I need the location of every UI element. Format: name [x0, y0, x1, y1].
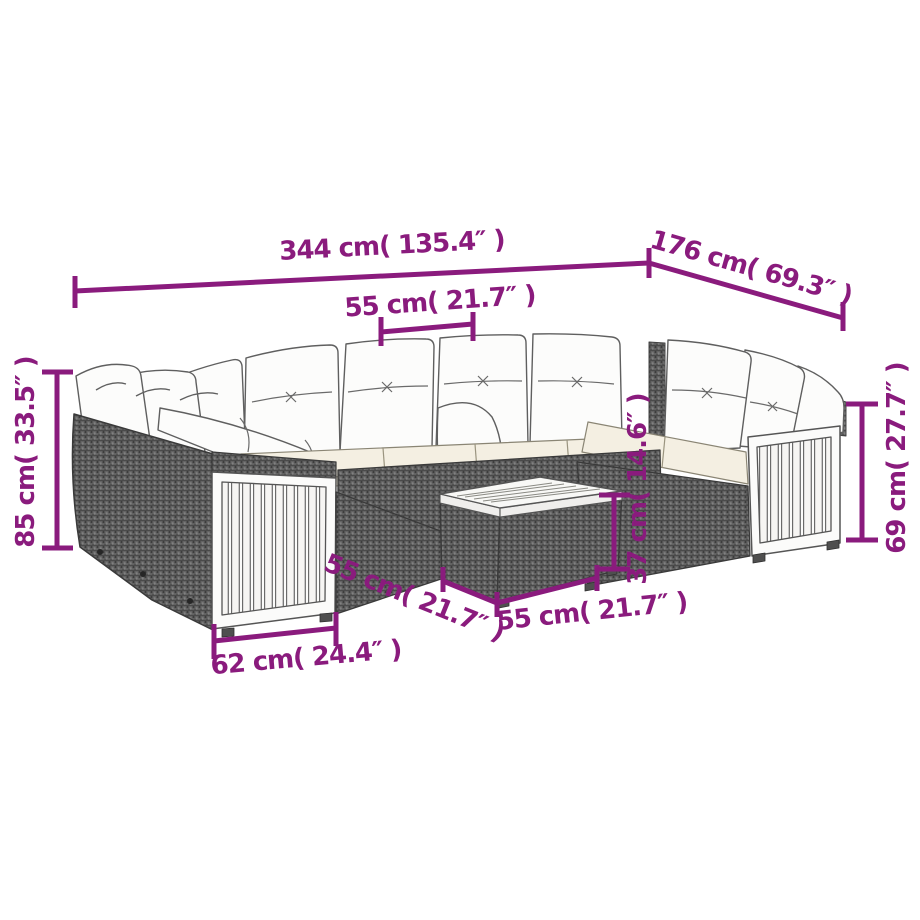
dim-line-arm-height — [846, 404, 878, 540]
sofa-illustration — [72, 334, 846, 637]
dim-label-table-height: 37 cm( 14.6″ ) — [623, 393, 653, 584]
dimension-diagram: 344 cm( 135.4″ ) 176 cm( 69.3″ ) 55 cm( … — [0, 0, 920, 920]
diagram-artwork — [0, 0, 920, 920]
wood-panel-right — [748, 426, 840, 556]
back-cushion — [340, 339, 434, 452]
dim-label-total-height: 85 cm( 33.5″ ) — [11, 356, 41, 547]
left-wing-front — [212, 452, 336, 629]
dim-label-arm-height: 69 cm( 27.7″ ) — [882, 362, 912, 553]
dim-line-total-height — [42, 372, 73, 548]
